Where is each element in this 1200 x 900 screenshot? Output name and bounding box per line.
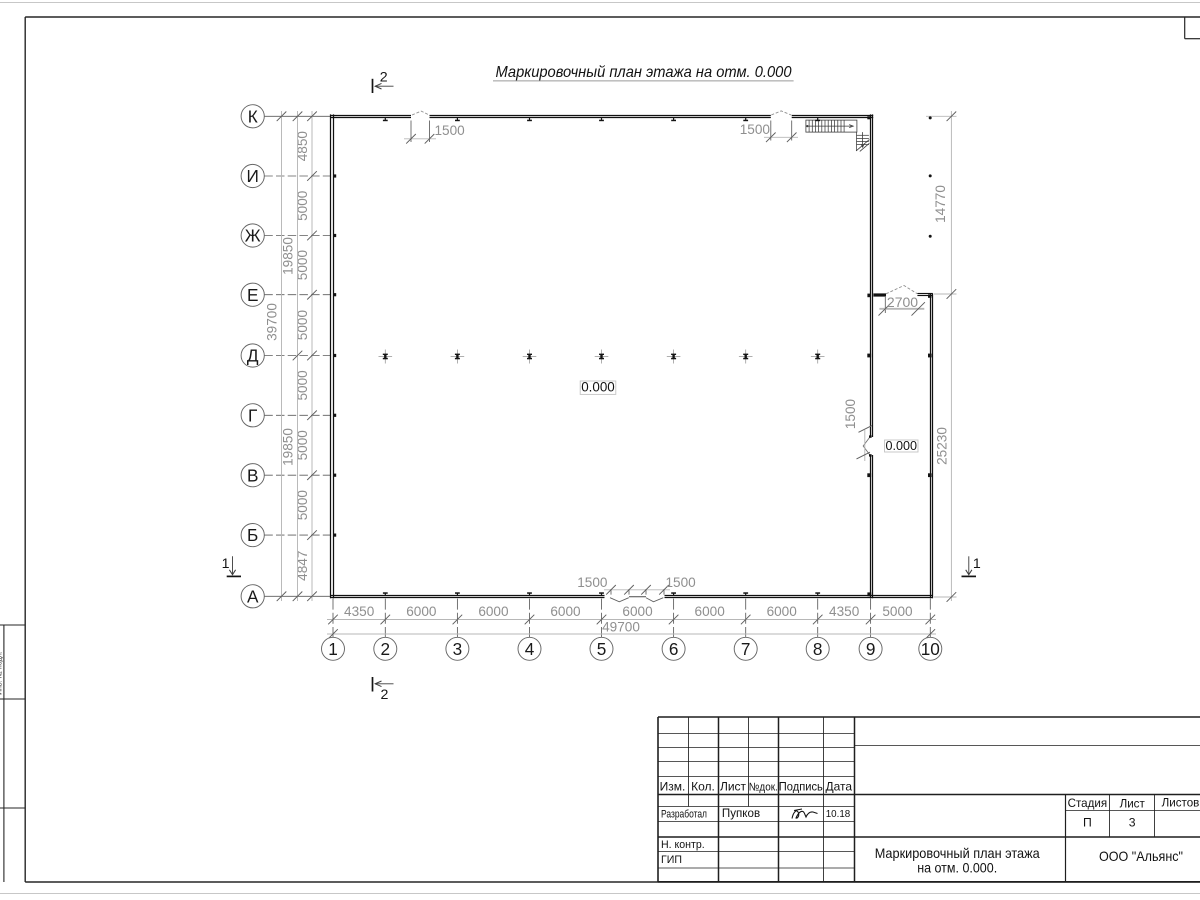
svg-text:Разработал: Разработал [661, 809, 707, 821]
svg-text:6000: 6000 [550, 604, 581, 619]
svg-text:1: 1 [973, 556, 981, 572]
svg-text:Г: Г [248, 405, 257, 425]
svg-text:Лист: Лист [1120, 797, 1146, 810]
svg-text:Подпись: Подпись [779, 781, 823, 794]
svg-text:1: 1 [328, 639, 338, 659]
svg-text:Дата: Дата [826, 780, 853, 794]
svg-text:1500: 1500 [843, 398, 858, 429]
svg-text:1500: 1500 [435, 123, 466, 138]
svg-text:3: 3 [453, 639, 463, 659]
svg-text:Е: Е [247, 285, 258, 305]
svg-text:5000: 5000 [882, 604, 913, 619]
svg-text:6000: 6000 [406, 604, 437, 619]
svg-text:№док.: №док. [749, 782, 778, 794]
svg-text:8: 8 [813, 639, 823, 659]
svg-text:6000: 6000 [767, 604, 798, 619]
svg-text:49700: 49700 [602, 619, 640, 634]
svg-text:Кол.: Кол. [691, 780, 715, 794]
svg-text:2: 2 [381, 687, 389, 703]
svg-text:ГИП: ГИП [661, 854, 682, 866]
svg-text:А: А [247, 586, 259, 606]
svg-text:1500: 1500 [577, 575, 608, 590]
svg-text:Маркировочный план этажа: Маркировочный план этажа [875, 846, 1040, 861]
svg-text:6: 6 [669, 639, 679, 659]
svg-text:2: 2 [381, 639, 391, 659]
svg-text:Б: Б [247, 525, 258, 545]
svg-text:на отм. 0.000.: на отм. 0.000. [917, 861, 997, 876]
svg-text:Изм.: Изм. [660, 780, 686, 794]
svg-text:0.000: 0.000 [581, 379, 615, 394]
svg-text:Д: Д [247, 346, 259, 366]
svg-text:Пупков: Пупков [722, 807, 760, 820]
svg-text:3: 3 [1129, 816, 1136, 830]
svg-text:ООО "Альянс": ООО "Альянс" [1099, 849, 1183, 864]
svg-text:6000: 6000 [478, 604, 509, 619]
svg-text:Листов: Листов [1162, 796, 1200, 809]
svg-text:6000: 6000 [695, 604, 726, 619]
svg-text:19850: 19850 [280, 237, 295, 275]
svg-text:39700: 39700 [264, 303, 279, 341]
svg-text:5: 5 [597, 639, 607, 659]
svg-text:14770: 14770 [933, 185, 948, 223]
svg-text:И: И [247, 166, 259, 186]
svg-text:Лист: Лист [720, 780, 747, 794]
svg-text:1500: 1500 [740, 122, 771, 137]
svg-text:6000: 6000 [622, 604, 653, 619]
svg-text:9: 9 [866, 639, 876, 659]
svg-text:Н. контр.: Н. контр. [661, 839, 705, 851]
svg-text:10: 10 [921, 639, 940, 659]
svg-text:0.000: 0.000 [885, 439, 917, 453]
svg-text:1500: 1500 [666, 575, 697, 590]
svg-text:П: П [1083, 816, 1092, 830]
svg-text:10.18: 10.18 [826, 809, 851, 820]
svg-text:4350: 4350 [344, 604, 375, 619]
svg-text:Маркировочный план этажа на от: Маркировочный план этажа на отм. 0.000 [496, 64, 792, 81]
svg-text:Ж: Ж [245, 226, 261, 246]
svg-text:4: 4 [525, 639, 535, 659]
svg-text:4350: 4350 [829, 604, 860, 619]
svg-text:7: 7 [741, 639, 751, 659]
svg-text:25230: 25230 [935, 427, 950, 465]
svg-text:2: 2 [380, 70, 388, 86]
svg-text:Инв. № подл.: Инв. № подл. [0, 651, 4, 695]
svg-text:2700: 2700 [887, 294, 918, 310]
svg-text:В: В [247, 465, 258, 485]
svg-text:19850: 19850 [280, 428, 295, 466]
svg-text:Стадия: Стадия [1068, 797, 1108, 810]
svg-text:1: 1 [222, 556, 230, 572]
svg-text:К: К [248, 106, 258, 126]
